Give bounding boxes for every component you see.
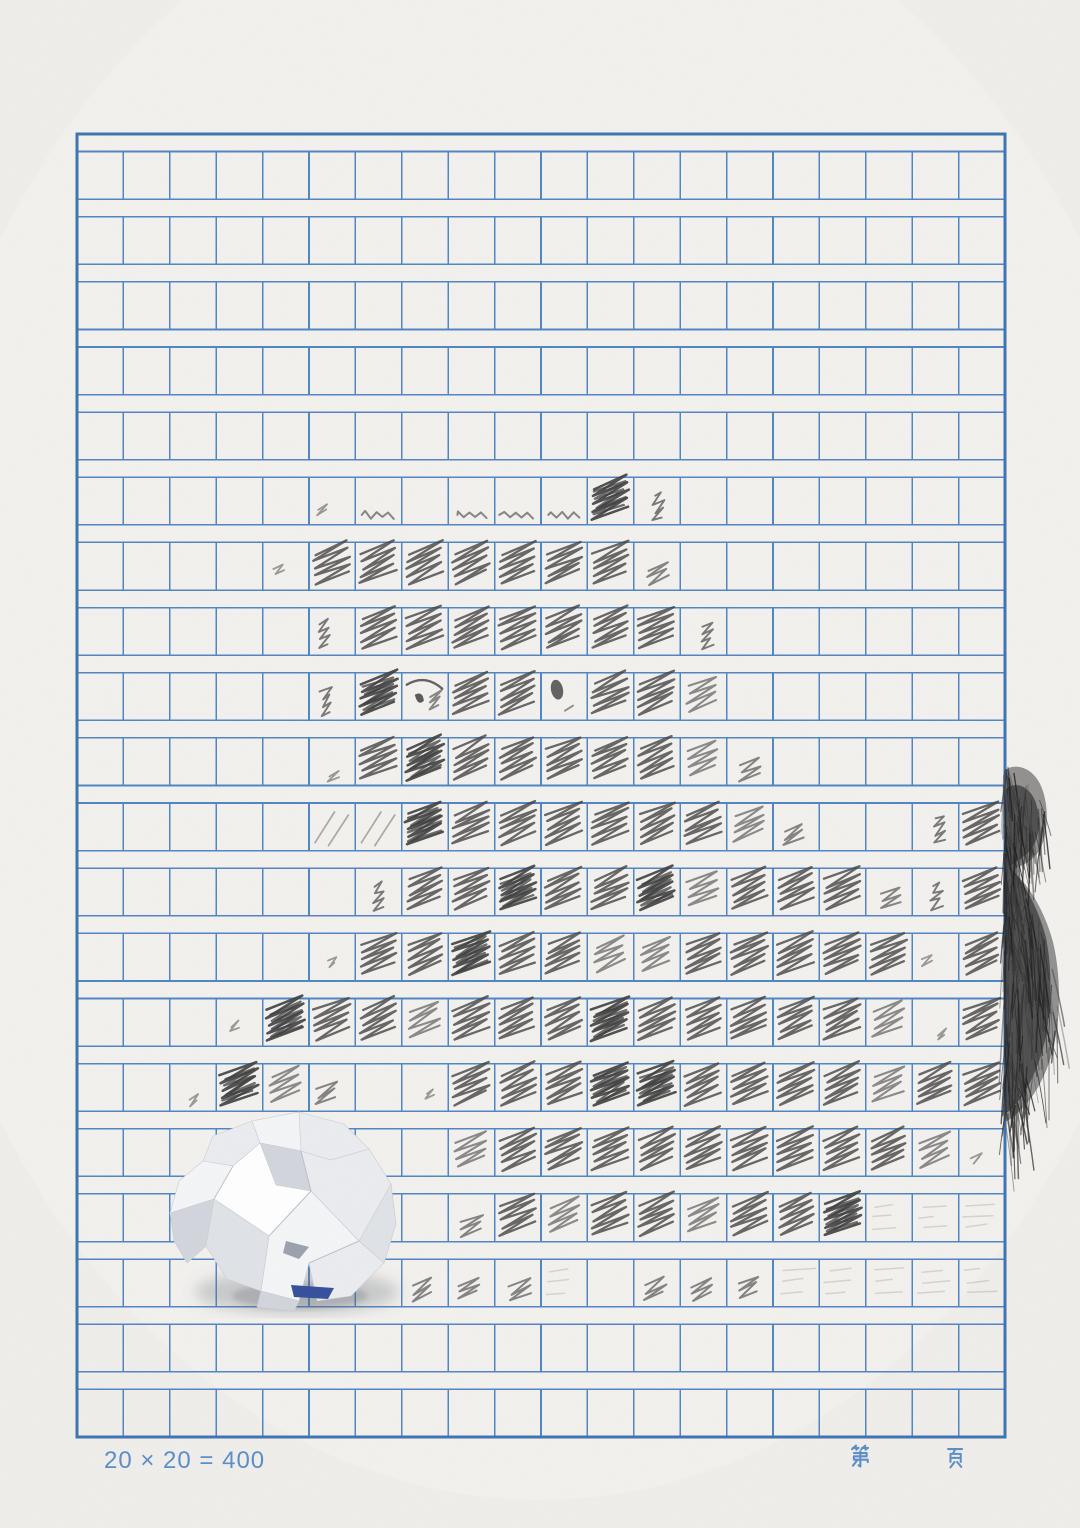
manuscript-paper-page: 20 × 20 = 400	[0, 0, 1080, 1528]
paper-grain	[0, 0, 1080, 1528]
paper-scene	[0, 0, 1080, 1528]
grid-count-label: 20 × 20 = 400	[104, 1447, 265, 1475]
page-suffix-char	[944, 1445, 971, 1472]
page-prefix-char	[849, 1443, 877, 1471]
